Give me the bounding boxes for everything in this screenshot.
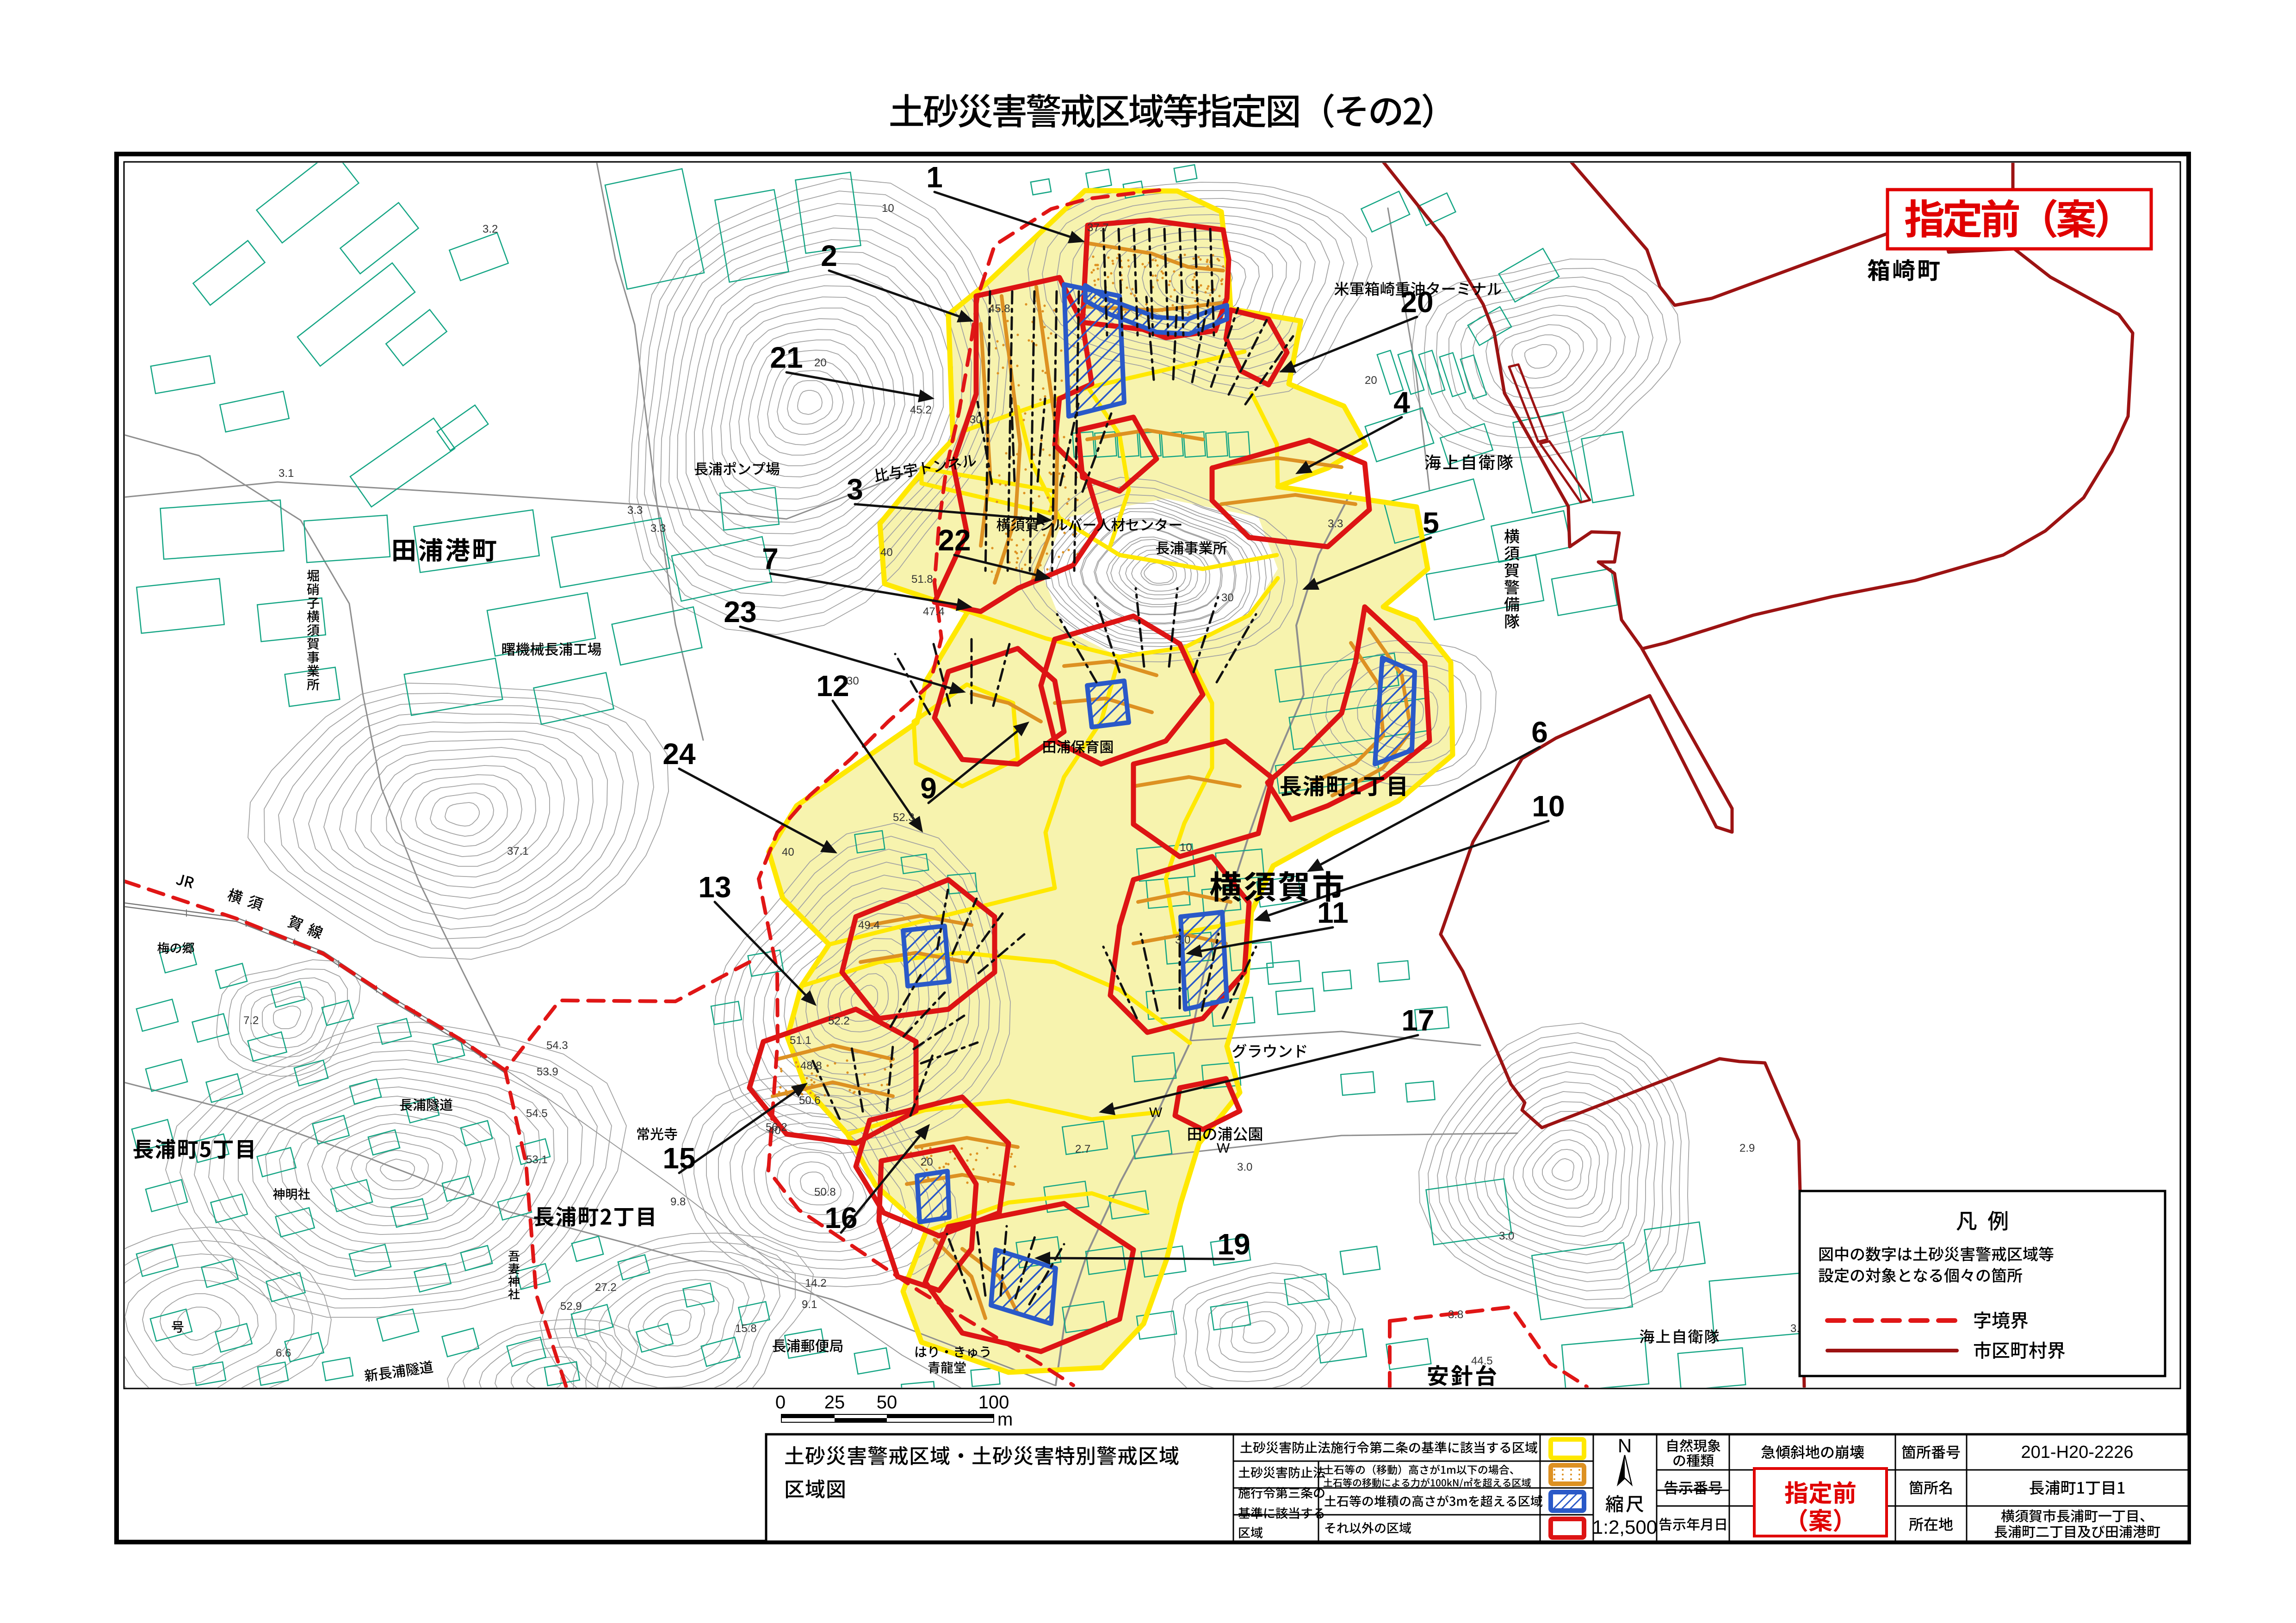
svg-text:3.3: 3.3 <box>1328 518 1343 530</box>
svg-text:201-H20-2226: 201-H20-2226 <box>2021 1443 2134 1462</box>
svg-text:47.4: 47.4 <box>923 605 945 618</box>
svg-text:W: W <box>1217 1141 1230 1156</box>
svg-text:10: 10 <box>1180 841 1192 854</box>
svg-text:20: 20 <box>814 357 827 369</box>
svg-text:m: m <box>997 1409 1013 1430</box>
svg-text:40: 40 <box>782 846 794 858</box>
svg-text:17: 17 <box>1401 1004 1434 1037</box>
svg-text:54.5: 54.5 <box>526 1107 548 1120</box>
svg-text:30: 30 <box>847 675 859 687</box>
svg-text:2.7: 2.7 <box>1075 1143 1090 1155</box>
svg-text:30: 30 <box>970 413 982 426</box>
svg-text:3.3: 3.3 <box>627 504 643 517</box>
svg-text:37.7: 37.7 <box>1087 222 1109 234</box>
svg-text:12: 12 <box>816 669 849 703</box>
svg-text:14.2: 14.2 <box>805 1277 827 1290</box>
svg-text:50: 50 <box>877 1392 897 1413</box>
svg-text:3: 3 <box>847 473 863 506</box>
svg-text:40: 40 <box>768 1124 781 1137</box>
svg-text:52.2: 52.2 <box>828 1015 850 1027</box>
svg-text:51.1: 51.1 <box>790 1034 811 1047</box>
svg-text:22: 22 <box>938 524 971 557</box>
svg-text:7.2: 7.2 <box>243 1014 259 1027</box>
svg-text:2: 2 <box>821 239 837 272</box>
svg-text:21: 21 <box>770 341 803 374</box>
svg-text:16: 16 <box>824 1201 857 1234</box>
svg-text:6.6: 6.6 <box>276 1347 291 1359</box>
svg-text:2.9: 2.9 <box>1739 1142 1755 1154</box>
svg-text:9.1: 9.1 <box>802 1298 817 1311</box>
svg-text:49.4: 49.4 <box>858 919 880 932</box>
svg-text:15.8: 15.8 <box>735 1322 757 1335</box>
svg-text:9.8: 9.8 <box>670 1196 686 1208</box>
svg-text:6: 6 <box>1531 716 1548 749</box>
svg-text:23: 23 <box>724 595 756 629</box>
svg-text:51.8: 51.8 <box>911 573 933 586</box>
svg-text:52.3: 52.3 <box>893 811 915 824</box>
svg-text:3.3: 3.3 <box>650 522 666 535</box>
svg-text:1: 1 <box>926 160 943 194</box>
svg-text:53.9: 53.9 <box>537 1066 558 1078</box>
svg-text:13: 13 <box>698 870 731 904</box>
svg-text:45.8: 45.8 <box>989 302 1010 315</box>
svg-text:3.8: 3.8 <box>1448 1308 1463 1321</box>
svg-text:20: 20 <box>1365 374 1377 387</box>
svg-text:N: N <box>1618 1435 1632 1456</box>
svg-text:W: W <box>1149 1105 1163 1120</box>
svg-text:27.2: 27.2 <box>595 1281 617 1294</box>
svg-text:10: 10 <box>1532 790 1565 823</box>
svg-text:5: 5 <box>1423 506 1439 539</box>
svg-text:3.2: 3.2 <box>483 223 498 235</box>
svg-text:48.8: 48.8 <box>800 1060 822 1072</box>
svg-text:10: 10 <box>882 202 894 215</box>
svg-text:4: 4 <box>1393 386 1410 419</box>
svg-text:3.0: 3.0 <box>1175 934 1190 946</box>
svg-text:53.1: 53.1 <box>526 1154 548 1166</box>
svg-text:50.6: 50.6 <box>799 1094 821 1107</box>
svg-text:50.8: 50.8 <box>814 1186 836 1198</box>
svg-text:11: 11 <box>1317 896 1349 929</box>
svg-text:20: 20 <box>921 1156 933 1168</box>
svg-text:25: 25 <box>824 1392 845 1413</box>
svg-text:30: 30 <box>1221 592 1234 604</box>
svg-text:37.1: 37.1 <box>507 845 529 858</box>
svg-text:9: 9 <box>920 771 937 805</box>
svg-text:24: 24 <box>662 737 696 771</box>
svg-text:1:2,500: 1:2,500 <box>1592 1516 1657 1538</box>
svg-text:19: 19 <box>1217 1228 1250 1261</box>
svg-text:45.2: 45.2 <box>910 404 932 416</box>
svg-text:52.9: 52.9 <box>560 1300 582 1313</box>
svg-text:15: 15 <box>662 1142 695 1175</box>
svg-text:44.5: 44.5 <box>1471 1355 1493 1367</box>
svg-text:54.3: 54.3 <box>546 1039 568 1052</box>
svg-text:40: 40 <box>880 546 893 559</box>
svg-text:3.0: 3.0 <box>1237 1161 1252 1173</box>
svg-text:7: 7 <box>762 542 779 575</box>
svg-text:3.1: 3.1 <box>278 467 294 480</box>
svg-text:0: 0 <box>775 1392 786 1413</box>
svg-text:3.0: 3.0 <box>1499 1230 1514 1242</box>
